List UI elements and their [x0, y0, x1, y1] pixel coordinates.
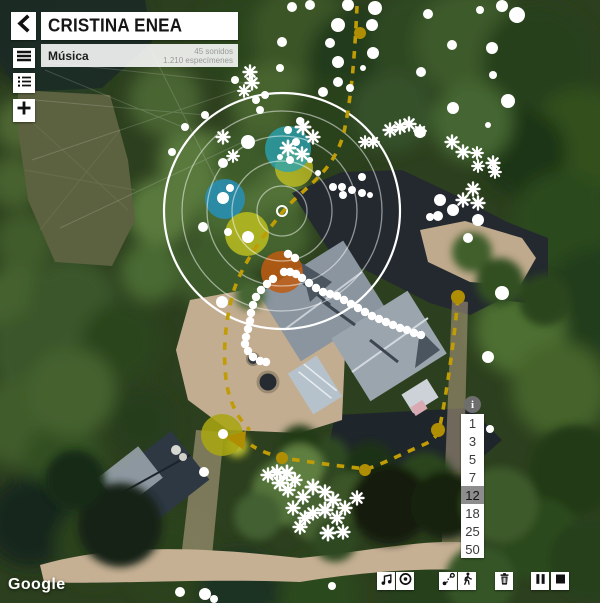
zoom-in-button[interactable] [13, 99, 35, 122]
pause-button[interactable] [531, 572, 549, 590]
scale-level-5[interactable]: 5 [461, 450, 484, 468]
scale-level-18[interactable]: 18 [461, 504, 484, 522]
route-button[interactable] [439, 572, 457, 590]
trash-button[interactable] [495, 572, 513, 590]
walk-button[interactable] [458, 572, 476, 590]
list-icon [18, 74, 31, 92]
target-icon [398, 571, 413, 592]
sounds-count: 45 sonidos [163, 47, 233, 56]
hamburger-icon [17, 49, 31, 67]
scale-level-1[interactable]: 1 [461, 414, 484, 432]
stop-icon [553, 571, 568, 592]
trash-icon [497, 571, 512, 592]
chevron-left-icon [15, 14, 32, 38]
pause-icon [533, 571, 548, 592]
plus-icon [17, 101, 31, 120]
music-icon [379, 571, 394, 592]
park-title-box: CRISTINA ENEA [41, 12, 238, 40]
music-button[interactable] [377, 572, 395, 590]
menu-button[interactable] [13, 48, 35, 68]
info-button[interactable]: i [464, 396, 481, 413]
google-attribution: Google [8, 576, 66, 594]
category-label: Música [48, 49, 163, 63]
category-bar: Música 45 sonidos 1.210 especímenes [41, 44, 238, 67]
scale-level-50[interactable]: 50 [461, 540, 484, 558]
walk-icon [460, 571, 475, 592]
map-app: { "header": { "title": "CRISTINA ENEA", … [0, 0, 600, 603]
scale-level-12[interactable]: 12 [461, 486, 484, 504]
satellite-map[interactable] [0, 0, 600, 603]
target-button[interactable] [396, 572, 414, 590]
list-button[interactable] [13, 73, 35, 93]
scale-level-25[interactable]: 25 [461, 522, 484, 540]
scale-level-3[interactable]: 3 [461, 432, 484, 450]
stats: 45 sonidos 1.210 especímenes [163, 47, 233, 65]
back-button[interactable] [11, 12, 36, 40]
stop-button[interactable] [551, 572, 569, 590]
scale-levels: 135712182550 [461, 414, 484, 558]
route-icon [441, 571, 456, 592]
specimens-count: 1.210 especímenes [163, 56, 233, 65]
scale-level-7[interactable]: 7 [461, 468, 484, 486]
page-title: CRISTINA ENEA [48, 15, 182, 37]
